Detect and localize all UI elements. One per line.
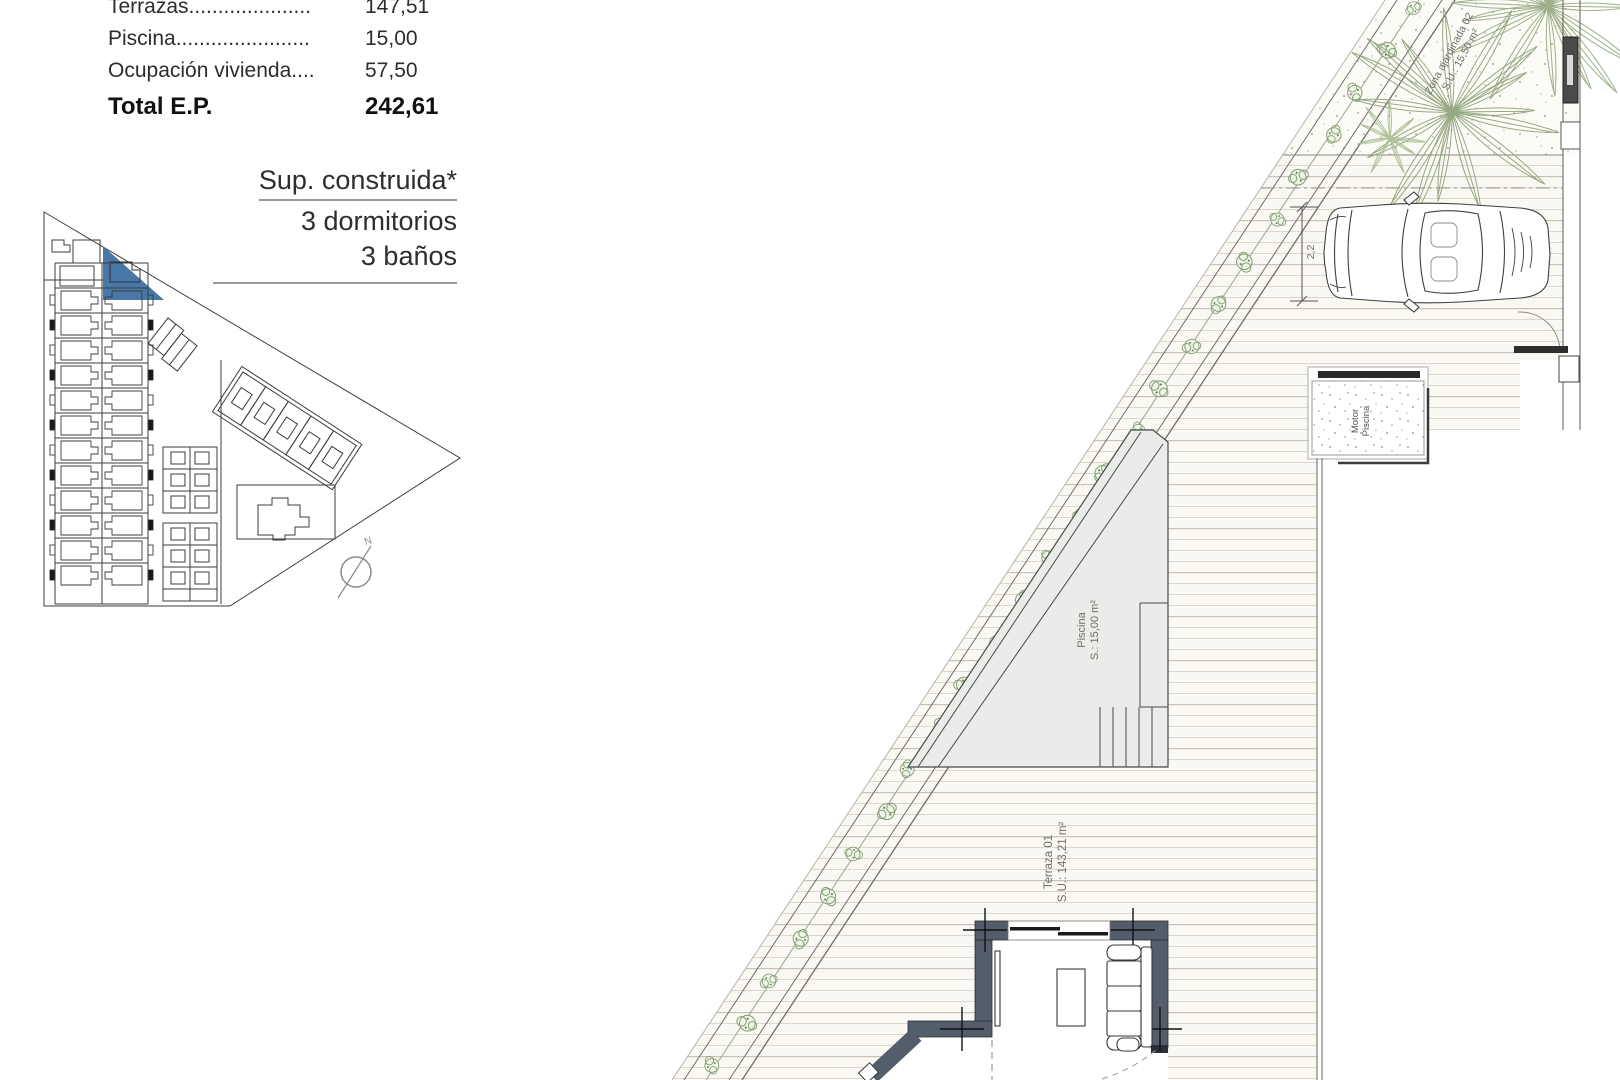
motor-label: Motor: [1350, 409, 1361, 433]
pool-label: Piscina: [1076, 611, 1088, 647]
total-label: Total E.P.: [108, 93, 212, 121]
table-total-row: Total E.P. 242,61: [108, 90, 488, 130]
swimming-pool: Piscina S.: 15,00 m²: [908, 430, 1168, 767]
keymap-mid-strip: [163, 360, 221, 604]
sideboard: [995, 951, 1000, 1026]
row-value: 57,50: [365, 59, 418, 83]
sofa: [1107, 945, 1152, 1051]
row-label: Ocupación vivienda....: [108, 59, 315, 83]
main-plan: Motor Piscina Pis: [672, 0, 1620, 1080]
north-label: N: [363, 535, 373, 548]
parking-dim-label: 2,2: [1305, 245, 1317, 260]
built-surface-title: Sup. construida*: [259, 165, 457, 201]
wall-left: [975, 940, 992, 1024]
gate-pillar: [1559, 356, 1579, 382]
row-label: Piscina.......................: [108, 27, 310, 51]
table-row: Terrazas..................... 147,51: [108, 0, 488, 24]
row-value: 15,00: [365, 27, 418, 51]
keymap-cluster-b: [212, 366, 361, 489]
keymap-building: [237, 485, 335, 540]
pool-motor-box: Motor Piscina: [1308, 367, 1428, 463]
total-value: 242,61: [365, 93, 438, 121]
terrace-label: Terraza 01: [1043, 835, 1055, 889]
gate-leaf: [1514, 346, 1568, 353]
north-arrow: N: [338, 535, 373, 598]
floor-plan-page: Motor Piscina Pis: [0, 0, 1620, 1080]
pool-area-label: S.: 15,00 m²: [1089, 600, 1101, 660]
row-label: Terrazas.....................: [108, 0, 311, 19]
row-value: 147,51: [365, 0, 429, 19]
terrace-area-label: S.U.: 143,21 m²: [1057, 822, 1069, 903]
table-row: Ocupación vivienda.... 57,50: [108, 56, 488, 88]
area-table: Terrazas..................... 147,51 Pis…: [108, 0, 488, 130]
site-plan-drawing: Motor Piscina Pis: [0, 0, 1620, 1080]
coffee-table: [1057, 969, 1085, 1026]
parked-car: [1324, 192, 1550, 312]
table-row: Piscina....................... 15,00: [108, 24, 488, 56]
motor-label-2: Piscina: [1361, 405, 1372, 436]
sliding-window: [1008, 921, 1110, 940]
lower-right-wall: [1317, 458, 1322, 1080]
meter-box: [1561, 122, 1580, 149]
built-surface-block: Sup. construida* 3 dormitorios 3 baños: [213, 165, 457, 284]
bathrooms-line: 3 baños: [213, 239, 457, 274]
keymap-cluster-a: [146, 318, 200, 371]
bedrooms-line: 3 dormitorios: [213, 204, 457, 239]
